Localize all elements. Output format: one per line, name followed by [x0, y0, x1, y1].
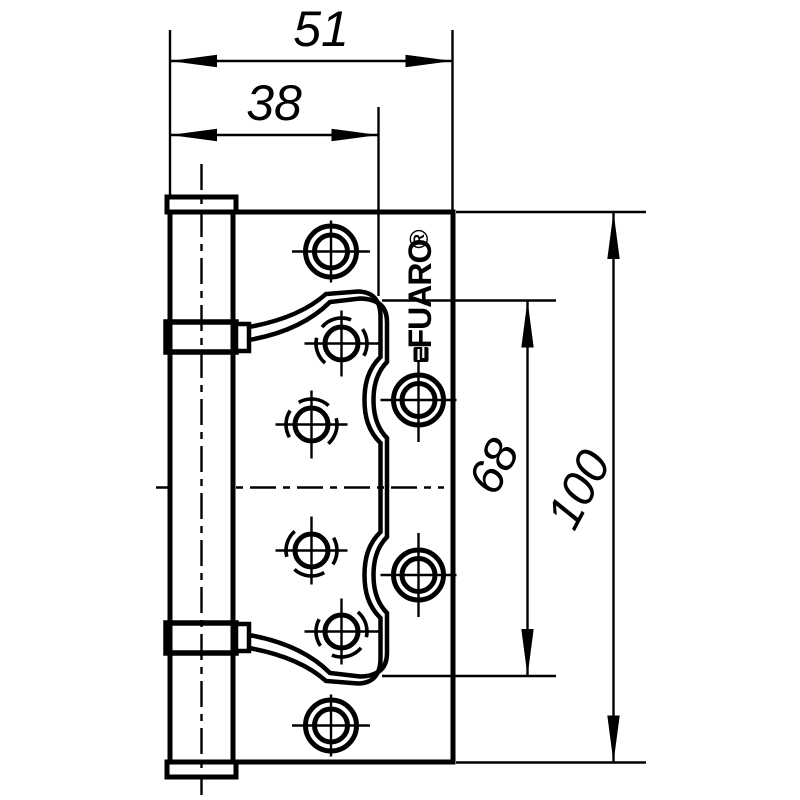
arrowhead-down-icon — [607, 716, 619, 763]
arrowhead-up-icon — [521, 301, 533, 348]
arrowhead-up-icon — [607, 212, 619, 259]
arrowhead-left-icon — [170, 55, 217, 67]
brand-logo: FUARO ® — [402, 229, 438, 362]
technical-drawing: 51 38 68 100 FUARO ® — [0, 0, 800, 800]
dimension-total-width: 51 — [170, 1, 453, 211]
dimension-value-100: 100 — [537, 442, 622, 538]
hinge-drawing-canvas: 51 38 68 100 FUARO ® — [0, 0, 800, 800]
arrowhead-left-icon — [170, 129, 217, 141]
arrowhead-down-icon — [521, 629, 533, 676]
registered-mark: ® — [404, 229, 434, 248]
brand-name-text: FUARO — [402, 240, 438, 349]
dimension-value-68: 68 — [458, 430, 530, 502]
dimension-value-38: 38 — [246, 75, 302, 131]
arrowhead-right-icon — [406, 55, 453, 67]
dimension-value-51: 51 — [293, 1, 349, 57]
arrowhead-right-icon — [332, 129, 379, 141]
